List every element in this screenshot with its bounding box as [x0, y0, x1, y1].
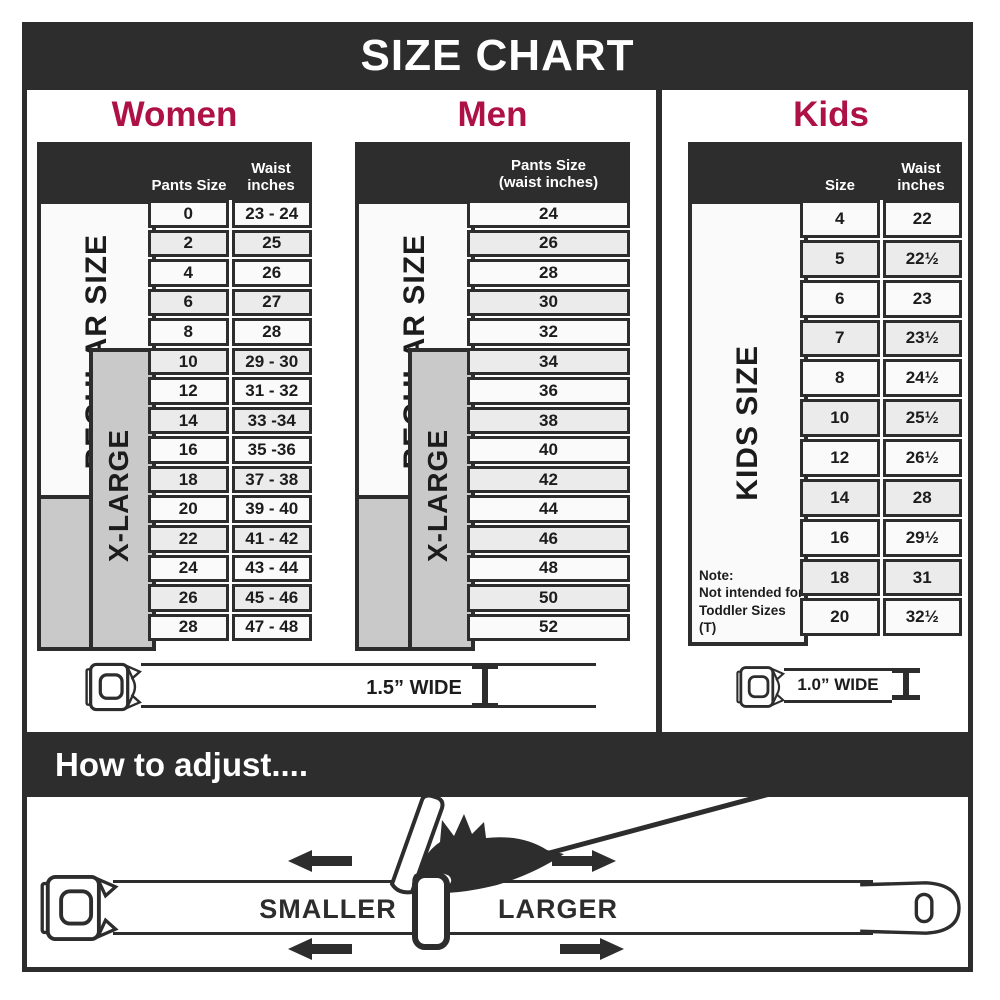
adult-belt-buckle-icon [85, 658, 143, 716]
men-table-row: 38 [467, 407, 630, 435]
smaller-arrow-bottom-icon [288, 938, 352, 960]
kids-table-row: 623 [800, 280, 962, 318]
smaller-label: SMALLER [248, 896, 408, 922]
kids-note: Note: Not intended for Toddler Sizes (T) [699, 567, 804, 637]
kids-waist-cell: 25½ [883, 399, 963, 437]
women-table-row: 2039 - 40 [148, 495, 312, 523]
women-table-row: 1029 - 30 [148, 348, 312, 376]
kids-size-table: Size Waist inches KIDS SIZE Note: Not in… [688, 142, 962, 638]
women-table-header: Pants Size Waist inches [37, 142, 312, 200]
men-table-row: 30 [467, 289, 630, 317]
men-table-row: 44 [467, 495, 630, 523]
kids-waist-cell: 22½ [883, 240, 963, 278]
men-table-row: 24 [467, 200, 630, 228]
women-size-cell: 6 [148, 289, 229, 317]
kids-table-row: 1428 [800, 479, 962, 517]
kids-table-row: 1629½ [800, 519, 962, 557]
kids-waist-cell: 29½ [883, 519, 963, 557]
men-size-cell: 42 [467, 466, 630, 494]
women-size-cell: 20 [148, 495, 229, 523]
women-size-cell: 2 [148, 230, 229, 258]
women-size-cell: 18 [148, 466, 229, 494]
women-size-table: Pants Size Waist inches REGULAR SIZE X-L… [37, 142, 312, 644]
kids-waist-cell: 26½ [883, 439, 963, 477]
adjust-belt-tail-icon [858, 877, 965, 939]
women-waist-cell: 41 - 42 [232, 525, 313, 553]
men-table-row: 34 [467, 348, 630, 376]
kids-waist-cell: 22 [883, 200, 963, 238]
kids-size-label: KIDS SIZE [731, 345, 765, 501]
kids-size-cell: 12 [800, 439, 880, 477]
women-table-row: 1231 - 32 [148, 377, 312, 405]
men-table-body: REGULAR SIZE X-LARGE 2426283032343638404… [355, 200, 630, 643]
women-waist-cell: 26 [232, 259, 313, 287]
smaller-arrow-top-icon [288, 850, 352, 872]
men-size-cell: 30 [467, 289, 630, 317]
men-table-row: 26 [467, 230, 630, 258]
kids-waist-cell: 23 [883, 280, 963, 318]
kids-waist-cell: 31 [883, 559, 963, 597]
men-size-table: Pants Size (waist inches) REGULAR SIZE X… [355, 142, 630, 644]
men-size-cell: 36 [467, 377, 630, 405]
women-size-cell: 4 [148, 259, 229, 287]
kids-section-title: Kids [700, 94, 962, 136]
kids-table-row: 824½ [800, 359, 962, 397]
men-size-cell: 50 [467, 584, 630, 612]
men-size-cell: 40 [467, 436, 630, 464]
women-waist-cell: 37 - 38 [232, 466, 313, 494]
women-table-row: 2241 - 42 [148, 525, 312, 553]
men-section-title: Men [355, 94, 630, 136]
women-size-cell: 24 [148, 555, 229, 583]
men-rows: 242628303234363840424446485052 [467, 200, 630, 643]
women-waist-cell: 39 - 40 [232, 495, 313, 523]
kids-size-cell: 10 [800, 399, 880, 437]
women-table-row: 2443 - 44 [148, 555, 312, 583]
men-size-cell: 38 [467, 407, 630, 435]
page-title: SIZE CHART [22, 22, 973, 90]
kids-size-cell: 18 [800, 559, 880, 597]
women-size-cell: 28 [148, 614, 229, 642]
women-size-cell: 10 [148, 348, 229, 376]
women-table-row: 1837 - 38 [148, 466, 312, 494]
adult-width-measure-bottom [472, 703, 498, 708]
women-waist-cell: 27 [232, 289, 313, 317]
women-waist-cell: 25 [232, 230, 313, 258]
women-table-row: 2645 - 46 [148, 584, 312, 612]
women-pants-size-header: Pants Size [148, 178, 230, 195]
women-waist-cell: 45 - 46 [232, 584, 313, 612]
kids-waist-cell: 28 [883, 479, 963, 517]
women-table-row: 2847 - 48 [148, 614, 312, 642]
women-waist-cell: 28 [232, 318, 313, 346]
men-pants-size-header: Pants Size (waist inches) [467, 158, 630, 192]
women-waist-cell: 43 - 44 [232, 555, 313, 583]
women-xlarge-label: X-LARGE [103, 429, 135, 562]
women-table-row: 426 [148, 259, 312, 287]
men-table-row: 42 [467, 466, 630, 494]
women-waist-cell: 47 - 48 [232, 614, 313, 642]
larger-label: LARGER [478, 896, 638, 922]
kids-size-cell: 16 [800, 519, 880, 557]
kids-belt-width-label: 1.0” WIDE [790, 676, 886, 694]
kids-size-cell: 7 [800, 320, 880, 358]
kids-table-row: 1025½ [800, 399, 962, 437]
men-table-row: 50 [467, 584, 630, 612]
women-waist-header: Waist inches [230, 161, 312, 195]
men-table-row: 48 [467, 555, 630, 583]
men-table-header: Pants Size (waist inches) [355, 142, 630, 200]
women-size-cell: 14 [148, 407, 229, 435]
kids-size-cell: 6 [800, 280, 880, 318]
women-table-row: 627 [148, 289, 312, 317]
men-size-cell: 34 [467, 348, 630, 376]
women-table-row: 1635 -36 [148, 436, 312, 464]
kids-size-cell: 4 [800, 200, 880, 238]
panel-divider [656, 90, 662, 732]
women-section-title: Women [37, 94, 312, 136]
belt-adjuster-slide [412, 872, 450, 950]
women-table-row: 1433 -34 [148, 407, 312, 435]
men-size-cell: 26 [467, 230, 630, 258]
kids-width-measure-bottom [892, 695, 920, 700]
women-waist-cell: 23 - 24 [232, 200, 313, 228]
women-table-row: 828 [148, 318, 312, 346]
how-to-adjust-header: How to adjust.... [27, 732, 968, 797]
women-waist-cell: 33 -34 [232, 407, 313, 435]
women-waist-cell: 31 - 32 [232, 377, 313, 405]
kids-waist-cell: 24½ [883, 359, 963, 397]
women-size-cell: 16 [148, 436, 229, 464]
men-table-row: 52 [467, 614, 630, 642]
adjust-belt-buckle-icon [40, 866, 120, 950]
men-size-cell: 46 [467, 525, 630, 553]
women-size-cell: 22 [148, 525, 229, 553]
women-rows: 023 - 242254266278281029 - 301231 - 3214… [148, 200, 312, 643]
kids-table-row: 422 [800, 200, 962, 238]
kids-waist-header: Waist inches [880, 161, 962, 195]
kids-table-row: 2032½ [800, 598, 962, 636]
men-size-cell: 28 [467, 259, 630, 287]
kids-size-box: KIDS SIZE Note: Not intended for Toddler… [688, 200, 808, 646]
kids-size-cell: 20 [800, 598, 880, 636]
larger-arrow-bottom-icon [560, 938, 624, 960]
kids-rows: 422522½623723½824½1025½1226½14281629½183… [800, 200, 962, 638]
kids-table-row: 1831 [800, 559, 962, 597]
kids-waist-cell: 23½ [883, 320, 963, 358]
kids-size-cell: 5 [800, 240, 880, 278]
women-size-cell: 12 [148, 377, 229, 405]
men-table-row: 28 [467, 259, 630, 287]
women-size-cell: 0 [148, 200, 229, 228]
women-table-row: 023 - 24 [148, 200, 312, 228]
women-waist-cell: 29 - 30 [232, 348, 313, 376]
men-size-cell: 24 [467, 200, 630, 228]
kids-size-cell: 8 [800, 359, 880, 397]
kids-table-row: 723½ [800, 320, 962, 358]
adult-width-measure-bar [482, 664, 488, 708]
women-size-cell: 26 [148, 584, 229, 612]
women-table-row: 225 [148, 230, 312, 258]
men-table-row: 46 [467, 525, 630, 553]
men-size-cell: 32 [467, 318, 630, 346]
men-table-row: 36 [467, 377, 630, 405]
women-size-cell: 8 [148, 318, 229, 346]
men-size-cell: 52 [467, 614, 630, 642]
kids-table-row: 1226½ [800, 439, 962, 477]
women-table-body: REGULAR SIZE X-LARGE 023 - 2422542662782… [37, 200, 312, 643]
adult-belt-width-label: 1.5” WIDE [344, 678, 484, 698]
men-size-cell: 48 [467, 555, 630, 583]
kids-table-row: 522½ [800, 240, 962, 278]
kids-belt-buckle-icon [736, 661, 786, 713]
kids-table-header: Size Waist inches [688, 142, 962, 200]
kids-table-body: KIDS SIZE Note: Not intended for Toddler… [688, 200, 962, 638]
kids-waist-cell: 32½ [883, 598, 963, 636]
women-waist-cell: 35 -36 [232, 436, 313, 464]
men-table-row: 40 [467, 436, 630, 464]
kids-size-cell: 14 [800, 479, 880, 517]
men-size-cell: 44 [467, 495, 630, 523]
men-xlarge-label: X-LARGE [422, 429, 454, 562]
men-table-row: 32 [467, 318, 630, 346]
kids-size-header: Size [800, 178, 880, 195]
